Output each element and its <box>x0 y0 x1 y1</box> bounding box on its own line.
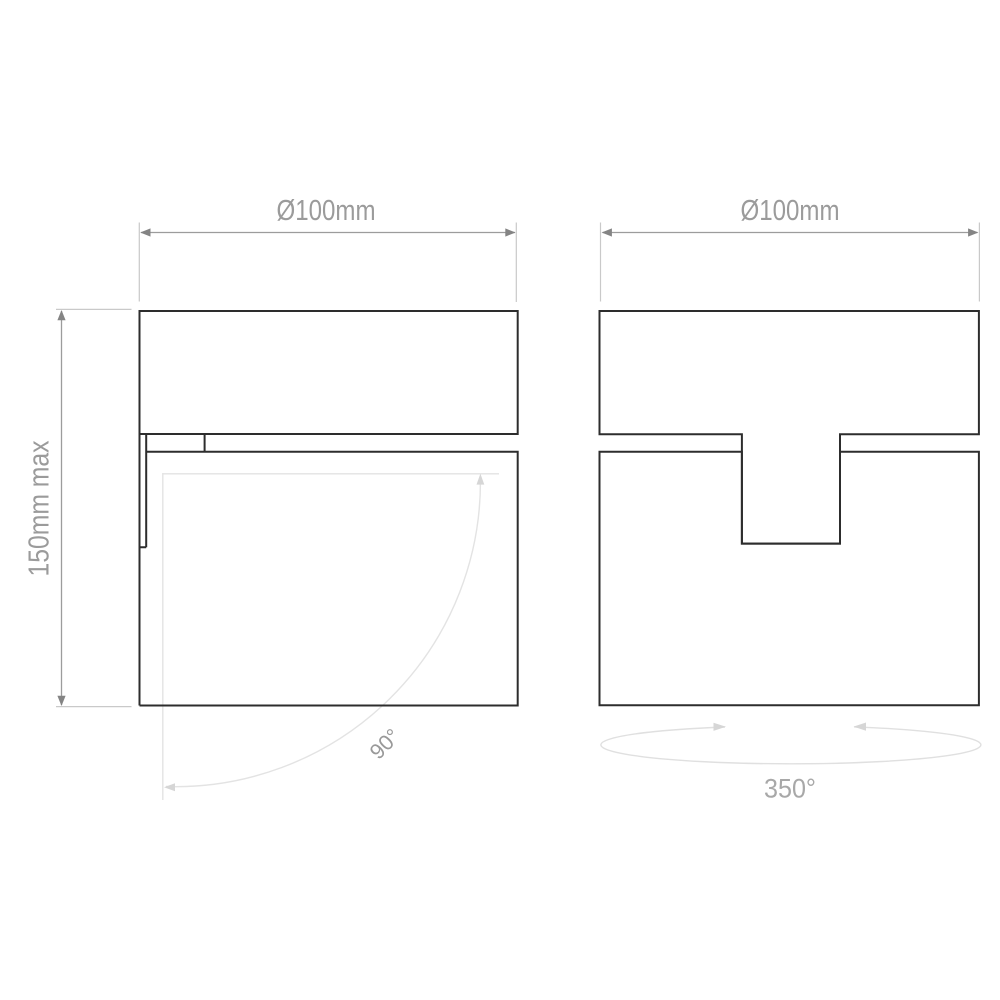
svg-text:Ø100mm: Ø100mm <box>277 195 376 227</box>
svg-text:150mm max: 150mm max <box>24 440 56 576</box>
svg-text:350°: 350° <box>764 774 816 804</box>
svg-text:Ø100mm: Ø100mm <box>741 195 840 227</box>
